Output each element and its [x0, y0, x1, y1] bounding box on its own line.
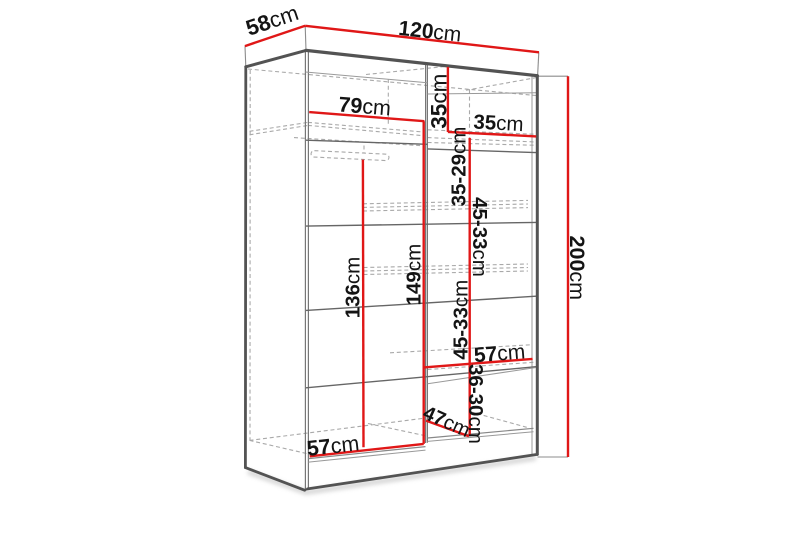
svg-text:35-29cm: 35-29cm	[447, 127, 470, 207]
svg-text:149cm: 149cm	[403, 244, 426, 306]
svg-text:35cm: 35cm	[426, 74, 451, 129]
svg-text:35cm: 35cm	[473, 111, 524, 137]
svg-text:200cm: 200cm	[565, 236, 589, 301]
svg-text:45-33cm: 45-33cm	[450, 280, 473, 360]
svg-text:136cm: 136cm	[342, 257, 365, 319]
svg-text:45-33cm: 45-33cm	[468, 197, 491, 277]
svg-text:79cm: 79cm	[338, 92, 392, 120]
